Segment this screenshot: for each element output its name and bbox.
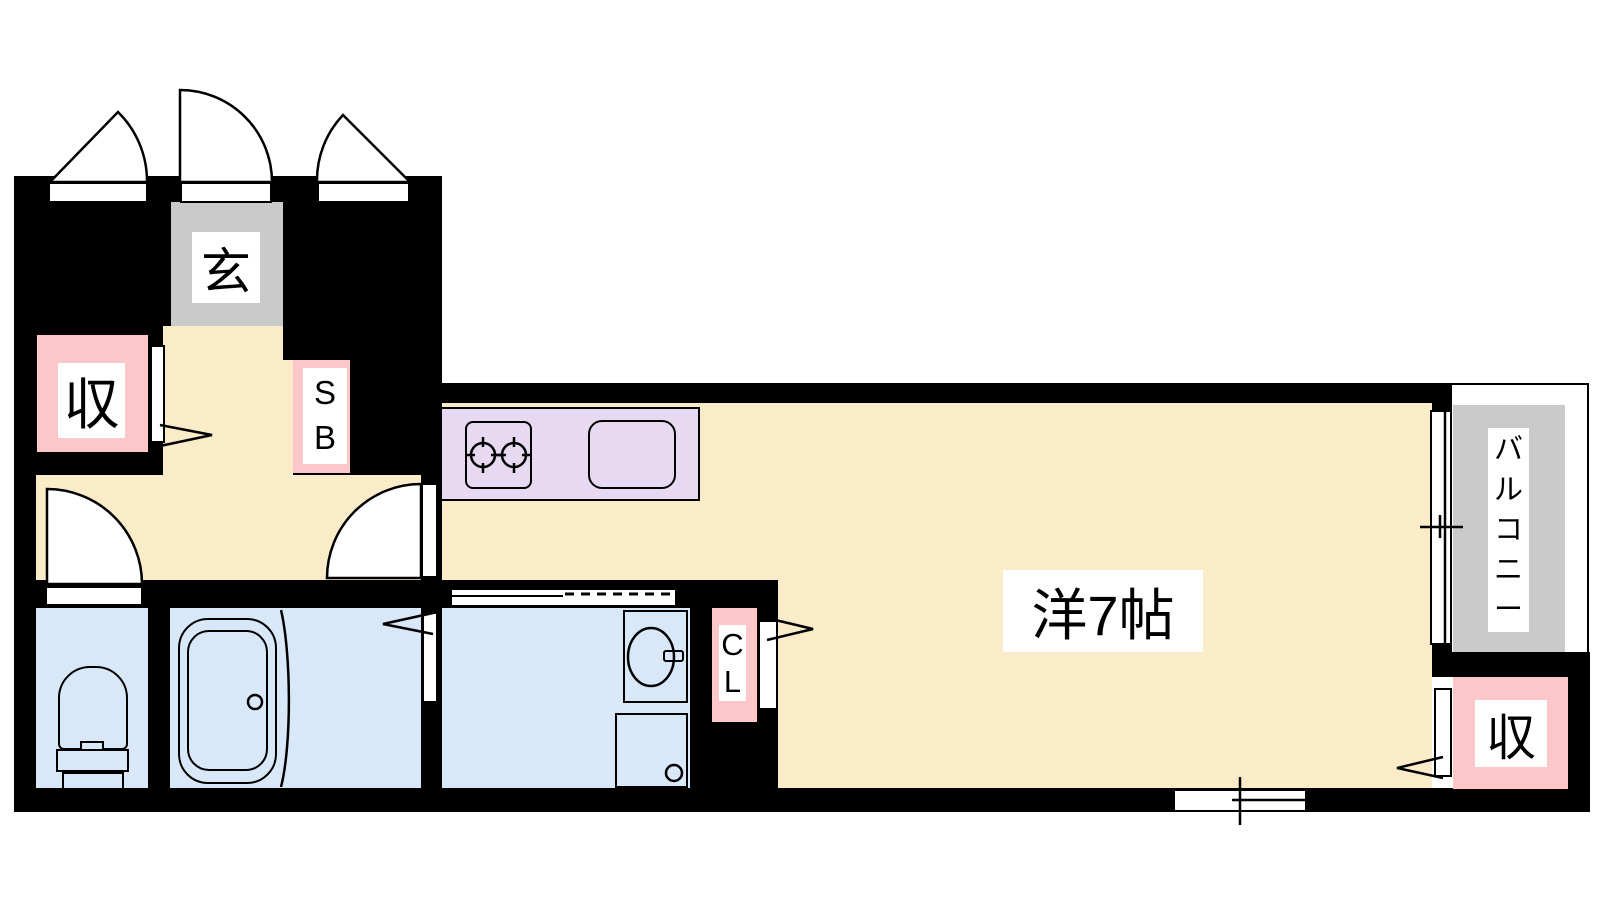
- hall-door-leaf: [421, 483, 438, 578]
- closet-label-text: CL: [719, 626, 746, 700]
- hall-floor-upper: [163, 326, 283, 360]
- shoe-box-label: SB: [303, 368, 347, 464]
- western-room-label-text: 洋7帖: [1031, 571, 1174, 652]
- wall-top-main: [440, 383, 1452, 403]
- toilet-tank: [56, 749, 129, 772]
- bathtub-inner: [187, 630, 268, 771]
- storage-left-label: 収: [58, 363, 125, 438]
- bathroom-door-leaf: [422, 612, 438, 703]
- balcony-label: バルコニー: [1488, 428, 1529, 632]
- closet-door-leaf: [758, 620, 778, 710]
- shoe-box-label-text: SB: [303, 371, 347, 460]
- balcony-label-text: バルコニー: [1488, 430, 1529, 630]
- floor-plan: 玄 収 SB 洋7帖 CL バルコニー 収: [0, 0, 1600, 900]
- doorway-entrance: [180, 182, 272, 203]
- western-room-label: 洋7帖: [1003, 570, 1203, 652]
- toilet-icon: [58, 666, 128, 750]
- storage-right-door-leaf: [1434, 688, 1452, 777]
- wall-toilet-bath-divider: [148, 580, 170, 792]
- storage-right-label-text: 収: [1486, 700, 1536, 767]
- wall-bottom-outer: [14, 788, 1590, 812]
- entrance-label-text: 玄: [201, 232, 251, 303]
- toilet-doorway: [45, 586, 143, 606]
- closet-label: CL: [719, 625, 746, 701]
- hall-floor-lower: [36, 475, 421, 580]
- wall-left-outer: [14, 608, 36, 792]
- hall-floor-mid: [163, 360, 293, 475]
- storage-left-label-text: 収: [64, 363, 120, 438]
- doorway-top-left: [48, 182, 148, 203]
- storage-right-label: 収: [1475, 700, 1547, 767]
- wall-washroom-closet-divider: [690, 608, 712, 790]
- stove-icon: [465, 421, 532, 489]
- faucet-icon: [663, 650, 684, 662]
- storage-left-door-leaf: [150, 345, 165, 443]
- toilet-base: [62, 772, 124, 790]
- washing-machine-icon: [615, 713, 688, 788]
- bottom-window: [1173, 789, 1307, 812]
- washroom-sliding-door: [450, 588, 677, 607]
- sink-icon: [588, 420, 676, 489]
- balcony-window: [1430, 410, 1452, 645]
- doorway-top-right: [317, 182, 410, 203]
- entrance-label: 玄: [192, 232, 260, 303]
- wall-balcony-storage-divider: [1432, 652, 1590, 677]
- wall-right-outer: [1568, 652, 1590, 812]
